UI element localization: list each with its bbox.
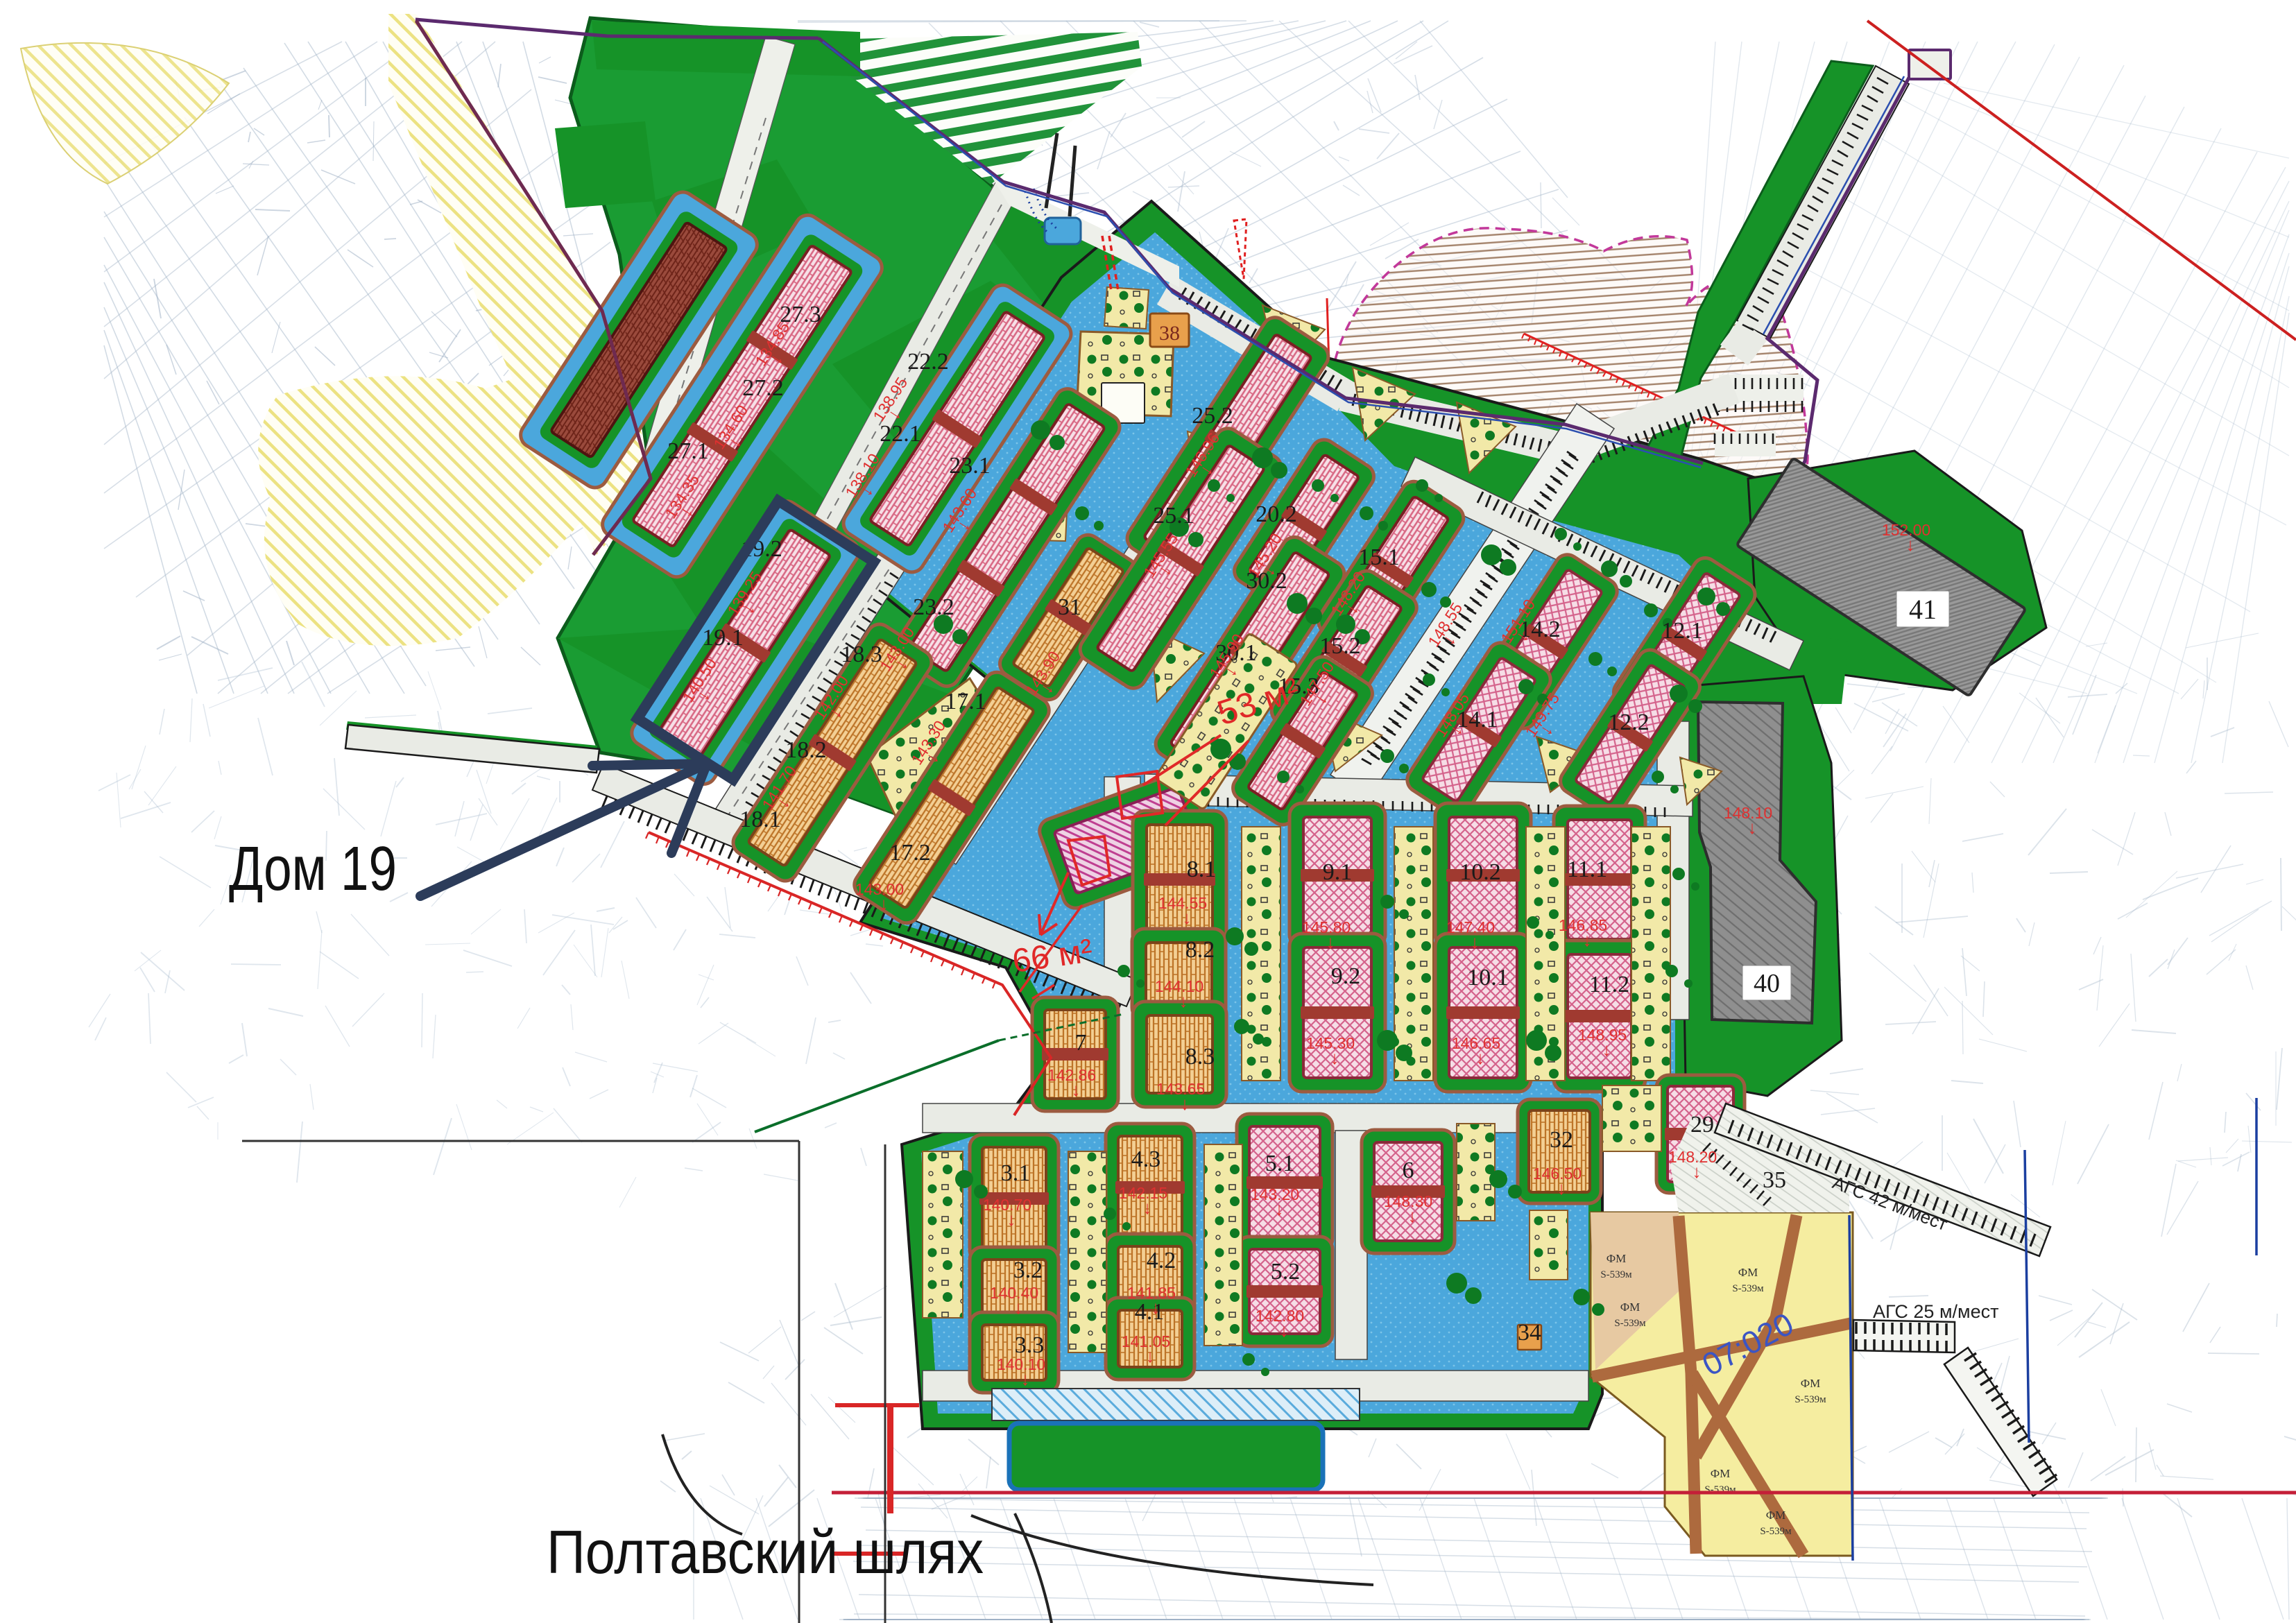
svg-text:3.1: 3.1	[1001, 1160, 1031, 1186]
svg-text:29: 29	[1690, 1112, 1714, 1137]
svg-text:↓: ↓	[1143, 1198, 1152, 1218]
svg-text:↓: ↓	[1179, 991, 1188, 1011]
svg-text:↓: ↓	[1330, 1048, 1339, 1068]
svg-text:↓: ↓	[880, 894, 889, 914]
svg-text:35: 35	[1763, 1167, 1786, 1193]
svg-text:15.1: 15.1	[1358, 544, 1400, 570]
svg-text:22.2: 22.2	[907, 349, 949, 375]
svg-text:8.3: 8.3	[1185, 1044, 1215, 1070]
svg-text:↓: ↓	[1408, 1206, 1417, 1226]
svg-text:↓: ↓	[1326, 932, 1335, 952]
svg-text:↓: ↓	[1275, 1199, 1284, 1219]
svg-text:ФМ: ФМ	[1607, 1252, 1627, 1265]
svg-text:17.1: 17.1	[945, 689, 986, 714]
svg-text:↓: ↓	[1183, 908, 1192, 928]
svg-text:ФМ: ФМ	[1801, 1377, 1821, 1390]
svg-text:31: 31	[1058, 594, 1081, 620]
svg-text:3.3: 3.3	[1015, 1332, 1045, 1358]
svg-text:27.2: 27.2	[742, 375, 784, 401]
svg-text:S-539м: S-539м	[1760, 1526, 1792, 1537]
svg-text:↓: ↓	[1181, 1094, 1190, 1114]
svg-text:6: 6	[1403, 1158, 1414, 1183]
svg-text:↓: ↓	[1072, 1080, 1081, 1100]
svg-text:18.2: 18.2	[785, 737, 827, 763]
svg-text:3.2: 3.2	[1013, 1257, 1043, 1283]
svg-text:27.3: 27.3	[780, 302, 821, 327]
svg-text:38: 38	[1159, 322, 1180, 345]
svg-text:11.2: 11.2	[1589, 972, 1629, 997]
svg-text:25.2: 25.2	[1192, 403, 1233, 429]
svg-text:10.1: 10.1	[1467, 965, 1509, 990]
svg-text:12.1: 12.1	[1661, 618, 1703, 644]
svg-text:8.1: 8.1	[1187, 857, 1217, 882]
svg-text:15.2: 15.2	[1319, 633, 1361, 659]
svg-text:5.1: 5.1	[1265, 1151, 1295, 1176]
svg-text:↓: ↓	[1021, 1369, 1030, 1389]
svg-text:10.2: 10.2	[1459, 859, 1501, 885]
svg-text:32: 32	[1550, 1127, 1573, 1153]
svg-text:4.2: 4.2	[1147, 1248, 1176, 1273]
svg-text:27.1: 27.1	[667, 438, 709, 464]
svg-text:↓: ↓	[1906, 535, 1915, 555]
svg-text:↓: ↓	[1146, 1346, 1155, 1366]
svg-text:41: 41	[1909, 594, 1937, 625]
svg-text:АГС 25 м/мест: АГС 25 м/мест	[1873, 1301, 1998, 1322]
svg-text:S-539м: S-539м	[1794, 1394, 1826, 1405]
svg-text:S-539м: S-539м	[1614, 1318, 1646, 1329]
svg-text:9.1: 9.1	[1323, 859, 1353, 885]
svg-text:34: 34	[1518, 1320, 1541, 1346]
svg-text:17.2: 17.2	[889, 840, 931, 866]
svg-text:19.1: 19.1	[702, 625, 744, 651]
svg-text:25.1: 25.1	[1153, 503, 1194, 529]
svg-text:↓: ↓	[1007, 1210, 1016, 1230]
svg-text:↓: ↓	[1471, 932, 1480, 952]
svg-text:9.2: 9.2	[1331, 963, 1361, 989]
svg-text:40: 40	[1754, 969, 1780, 998]
svg-text:ФМ: ФМ	[1766, 1509, 1786, 1522]
svg-text:↓: ↓	[1693, 1162, 1702, 1182]
svg-text:S-539м: S-539м	[1600, 1269, 1632, 1280]
svg-text:5.2: 5.2	[1271, 1259, 1301, 1285]
svg-text:↓: ↓	[1280, 1321, 1289, 1341]
svg-text:↓: ↓	[1014, 1298, 1023, 1318]
svg-text:↓: ↓	[1151, 1298, 1160, 1318]
svg-text:4.3: 4.3	[1131, 1147, 1161, 1172]
svg-text:22.1: 22.1	[880, 421, 921, 447]
svg-text:11.1: 11.1	[1567, 857, 1607, 882]
svg-text:Полтавский шлях: Полтавский шлях	[547, 1518, 984, 1586]
svg-text:S-539м: S-539м	[1732, 1283, 1764, 1294]
svg-text:8.2: 8.2	[1185, 937, 1215, 963]
svg-text:23.2: 23.2	[913, 594, 954, 620]
svg-text:↓: ↓	[1476, 1048, 1485, 1068]
svg-text:ФМ: ФМ	[1711, 1467, 1731, 1480]
svg-text:ФМ: ФМ	[1738, 1266, 1758, 1279]
svg-text:18.3: 18.3	[841, 642, 882, 667]
svg-text:20.2: 20.2	[1256, 501, 1297, 527]
svg-text:↓: ↓	[1602, 1040, 1611, 1060]
svg-text:7: 7	[1075, 1030, 1087, 1056]
svg-text:ФМ: ФМ	[1620, 1300, 1640, 1314]
svg-text:↓: ↓	[1748, 818, 1757, 838]
svg-text:Дом 19: Дом 19	[229, 834, 397, 904]
svg-text:↓: ↓	[1557, 1178, 1566, 1199]
svg-text:12.2: 12.2	[1608, 710, 1650, 735]
svg-text:↓: ↓	[1583, 930, 1592, 950]
svg-text:23.1: 23.1	[949, 453, 991, 479]
